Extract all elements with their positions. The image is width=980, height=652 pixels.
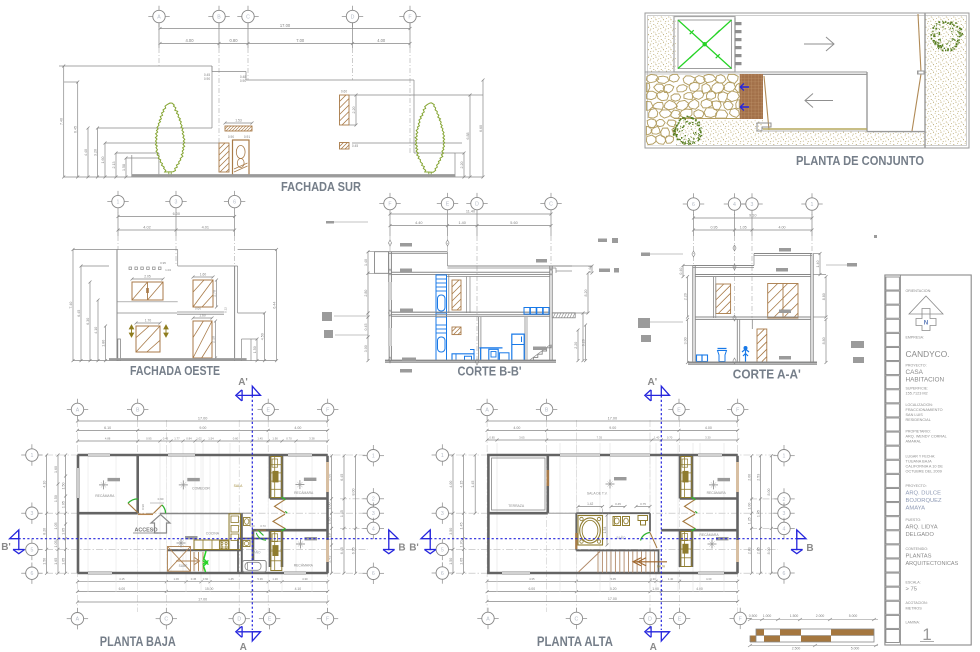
svg-text:PROPIETARIO:: PROPIETARIO: (906, 430, 931, 434)
svg-text:6: 6 (372, 571, 375, 577)
svg-text:11.40: 11.40 (466, 210, 475, 214)
svg-text:1.60: 1.60 (199, 314, 206, 318)
svg-text:2.10: 2.10 (211, 336, 215, 343)
svg-text:6.00: 6.00 (173, 212, 180, 216)
svg-text:0.20: 0.20 (581, 339, 585, 346)
svg-text:4: 4 (372, 526, 375, 532)
svg-text:2.500: 2.500 (792, 647, 801, 651)
svg-text:D: D (475, 202, 479, 208)
svg-text:1.50: 1.50 (42, 558, 46, 565)
svg-text:1.65: 1.65 (61, 558, 65, 565)
svg-text:RECÁMARA: RECÁMARA (95, 494, 115, 498)
svg-text:4.88: 4.88 (105, 437, 111, 441)
svg-text:1.54: 1.54 (603, 527, 607, 534)
svg-text:6.44: 6.44 (272, 302, 276, 309)
svg-text:155.7123 M2: 155.7123 M2 (906, 392, 928, 396)
svg-text:4.01: 4.01 (202, 226, 209, 230)
svg-text:1.04: 1.04 (165, 268, 171, 272)
svg-text:7.35: 7.35 (597, 436, 603, 440)
svg-text:PUESTO:: PUESTO: (906, 518, 922, 522)
svg-text:7.40: 7.40 (60, 118, 64, 125)
svg-text:6: 6 (692, 202, 695, 208)
svg-text:1.40: 1.40 (816, 261, 820, 268)
svg-text:5.60: 5.60 (510, 221, 517, 225)
svg-text:1: 1 (811, 202, 814, 208)
svg-text:A: A (76, 617, 80, 623)
svg-text:F: F (326, 407, 329, 413)
svg-text:3: 3 (30, 511, 33, 517)
svg-text:1.45: 1.45 (340, 510, 344, 517)
svg-text:0.91: 0.91 (244, 135, 250, 139)
svg-text:4.40: 4.40 (84, 149, 88, 156)
svg-text:0.90: 0.90 (240, 79, 246, 83)
svg-text:4.00: 4.00 (779, 226, 786, 230)
svg-text:1.50: 1.50 (449, 558, 453, 565)
svg-text:E: E (268, 617, 272, 623)
svg-text:1.58: 1.58 (122, 164, 126, 171)
svg-text:DELGADO: DELGADO (906, 532, 935, 538)
svg-text:PLANTAS: PLANTAS (906, 554, 932, 560)
svg-text:RECÁMARA: RECÁMARA (294, 563, 314, 567)
svg-text:0.12: 0.12 (224, 307, 228, 313)
svg-text:E: E (266, 407, 270, 413)
svg-text:FACHADA SUR: FACHADA SUR (281, 179, 362, 194)
svg-text:0.500: 0.500 (749, 614, 758, 618)
svg-text:3.30: 3.30 (705, 436, 711, 440)
svg-text:4.10: 4.10 (295, 587, 302, 591)
svg-text:C: C (246, 14, 250, 20)
svg-text:E: E (446, 202, 450, 208)
svg-text:1.00: 1.00 (747, 503, 751, 510)
svg-text:2.00: 2.00 (747, 474, 751, 481)
svg-text:2: 2 (372, 497, 375, 503)
svg-text:3: 3 (441, 511, 444, 517)
svg-text:PLANTA DE CONJUNTO: PLANTA DE CONJUNTO (796, 153, 924, 168)
svg-text:2.20: 2.20 (683, 293, 687, 300)
svg-text:3.20: 3.20 (93, 149, 97, 156)
svg-text:0.30: 0.30 (650, 577, 656, 581)
svg-text:1.40: 1.40 (459, 221, 466, 225)
svg-text:1.06: 1.06 (173, 577, 179, 581)
svg-text:LUGAR Y FECHA:: LUGAR Y FECHA: (906, 455, 936, 459)
svg-text:17.00: 17.00 (198, 598, 207, 602)
svg-text:0.40: 0.40 (679, 268, 683, 275)
svg-text:3.38: 3.38 (309, 437, 315, 441)
svg-text:6: 6 (783, 571, 786, 577)
svg-text:6: 6 (233, 200, 236, 206)
svg-text:1: 1 (783, 454, 786, 460)
svg-text:5.000: 5.000 (851, 647, 860, 651)
svg-text:B: B (136, 407, 140, 413)
svg-text:B: B (217, 14, 221, 20)
svg-text:A: A (486, 616, 490, 622)
svg-text:1.00: 1.00 (652, 587, 659, 591)
svg-text:0.45: 0.45 (364, 324, 368, 331)
svg-text:TIJUANA BAJA: TIJUANA BAJA (906, 460, 933, 464)
svg-text:B: B (545, 407, 549, 413)
svg-text:F: F (739, 616, 742, 622)
svg-text:1.40: 1.40 (654, 436, 660, 440)
svg-text:RECÁMARA: RECÁMARA (699, 533, 719, 537)
svg-text:1.42: 1.42 (587, 502, 593, 506)
svg-text:A': A' (238, 377, 248, 388)
svg-text:COCINA: COCINA (206, 532, 220, 536)
svg-text:8.80: 8.80 (822, 337, 826, 344)
svg-text:1.45: 1.45 (257, 437, 263, 441)
svg-text:B: B (398, 543, 405, 554)
svg-text:5.36: 5.36 (257, 577, 263, 581)
svg-text:6: 6 (441, 571, 444, 577)
svg-text:CALIFORNIA A 10 DE: CALIFORNIA A 10 DE (906, 465, 944, 469)
svg-text:6.88: 6.88 (466, 133, 470, 140)
svg-text:2.20: 2.20 (460, 162, 464, 169)
svg-text:4.50: 4.50 (260, 333, 264, 340)
svg-text:C: C (575, 616, 579, 622)
svg-text:1: 1 (30, 453, 33, 459)
svg-text:D: D (237, 617, 241, 623)
svg-text:0.85: 0.85 (489, 436, 495, 440)
svg-text:RECÁMARA: RECÁMARA (707, 491, 727, 495)
svg-text:PLANTA ALTA: PLANTA ALTA (537, 634, 613, 649)
svg-text:A: A (485, 407, 489, 413)
svg-text:F: F (388, 202, 391, 208)
svg-text:4.00: 4.00 (513, 426, 520, 430)
svg-text:2: 2 (783, 497, 786, 503)
svg-text:1.500: 1.500 (790, 614, 799, 618)
svg-text:0.95: 0.95 (711, 226, 718, 230)
svg-text:5.05: 5.05 (610, 577, 616, 581)
svg-text:PLANTA BAJA: PLANTA BAJA (100, 634, 176, 649)
svg-text:0.75: 0.75 (640, 502, 646, 506)
svg-text:ARQ. DULCE: ARQ. DULCE (906, 491, 942, 497)
svg-text:6.10: 6.10 (104, 426, 111, 430)
svg-text:N: N (924, 320, 929, 327)
svg-text:4.02: 4.02 (143, 226, 150, 230)
svg-text:1.50: 1.50 (54, 495, 58, 502)
svg-text:5.000: 5.000 (849, 614, 858, 618)
svg-text:6.45: 6.45 (340, 547, 344, 554)
svg-text:8.20: 8.20 (584, 290, 588, 297)
svg-text:C: C (549, 202, 553, 208)
svg-text:CORTE A-A': CORTE A-A' (733, 367, 801, 382)
svg-text:1.77: 1.77 (174, 437, 180, 441)
svg-text:1.53: 1.53 (235, 119, 242, 123)
svg-text:6.45: 6.45 (340, 474, 344, 481)
svg-text:6.45: 6.45 (77, 310, 81, 317)
svg-text:8.00: 8.00 (767, 547, 771, 554)
svg-text:SUBE: SUBE (179, 564, 188, 568)
svg-text:3: 3 (751, 202, 754, 208)
svg-text:F: F (326, 617, 329, 623)
svg-text:6.30: 6.30 (86, 318, 90, 325)
svg-text:2.000: 2.000 (816, 614, 825, 618)
svg-text:0.80: 0.80 (230, 38, 239, 43)
svg-text:A: A (76, 407, 80, 413)
svg-text:1.90: 1.90 (272, 437, 278, 441)
svg-text:1.80: 1.80 (101, 340, 105, 347)
svg-text:7.00: 7.00 (296, 38, 305, 43)
svg-text:0.45: 0.45 (615, 502, 621, 506)
svg-text:1.45: 1.45 (471, 481, 475, 488)
svg-text:0.45: 0.45 (163, 437, 169, 441)
svg-text:2.85: 2.85 (756, 547, 760, 554)
svg-text:1.20: 1.20 (459, 541, 463, 548)
svg-text:RESIDENCIAL: RESIDENCIAL (906, 418, 931, 422)
svg-text:4: 4 (783, 526, 786, 532)
svg-text:6.45: 6.45 (74, 126, 78, 133)
svg-text:D: D (648, 616, 652, 622)
svg-text:0.90: 0.90 (141, 504, 145, 510)
svg-text:2.05: 2.05 (144, 275, 151, 279)
svg-text:AMARAL: AMARAL (906, 440, 922, 444)
svg-text:PROYECTO:: PROYECTO: (906, 484, 927, 488)
svg-text:0.73: 0.73 (260, 524, 266, 528)
svg-text:D: D (351, 14, 355, 20)
svg-text:1.60: 1.60 (200, 273, 207, 277)
svg-text:0.70: 0.70 (286, 437, 292, 441)
svg-text:B': B' (409, 543, 419, 554)
svg-text:1: 1 (372, 454, 375, 460)
svg-text:F: F (736, 407, 739, 413)
svg-text:1.05: 1.05 (61, 528, 65, 535)
svg-text:2.83: 2.83 (747, 547, 751, 554)
svg-text:CANDYCO.: CANDYCO. (906, 350, 950, 359)
svg-text:B': B' (1, 542, 11, 553)
svg-text:1: 1 (441, 453, 444, 459)
svg-text:4: 4 (733, 202, 736, 208)
svg-text:BOJORQUEZ: BOJORQUEZ (906, 498, 943, 504)
svg-text:17.00: 17.00 (608, 597, 617, 601)
svg-text:1.05: 1.05 (54, 523, 58, 530)
svg-text:2.20: 2.20 (352, 107, 356, 114)
svg-text:4.00: 4.00 (186, 38, 195, 43)
svg-text:ARQUITECTONICAS: ARQUITECTONICAS (906, 561, 959, 567)
svg-text:EMPRESA:: EMPRESA: (906, 336, 925, 340)
svg-text:1.02: 1.02 (196, 437, 202, 441)
svg-text:17.00: 17.00 (608, 417, 618, 421)
svg-text:1.05: 1.05 (61, 501, 65, 508)
svg-text:4.00: 4.00 (377, 38, 386, 43)
svg-text:0.60: 0.60 (341, 90, 347, 94)
svg-text:4.40: 4.40 (415, 221, 422, 225)
svg-text:1.60: 1.60 (101, 157, 105, 164)
svg-text:15.00: 15.00 (205, 587, 214, 591)
svg-text:6.95: 6.95 (351, 547, 355, 554)
svg-text:1.40: 1.40 (364, 259, 368, 266)
svg-text:3.00: 3.00 (364, 345, 368, 352)
svg-text:4.30: 4.30 (302, 577, 308, 581)
svg-text:1.70: 1.70 (212, 290, 216, 297)
svg-text:4.00: 4.00 (696, 587, 703, 591)
svg-text:17.00: 17.00 (280, 23, 291, 28)
svg-text:BAÑO: BAÑO (251, 549, 261, 554)
svg-text:8.20: 8.20 (42, 528, 46, 535)
svg-text:5: 5 (30, 547, 33, 553)
svg-text:8.00: 8.00 (767, 489, 771, 496)
svg-text:9.00: 9.00 (199, 426, 206, 430)
svg-text:4.30: 4.30 (706, 577, 712, 581)
svg-text:CORTE B-B': CORTE B-B' (458, 364, 522, 379)
svg-text:A: A (650, 642, 657, 652)
svg-text:F: F (408, 14, 411, 20)
svg-text:0.95: 0.95 (146, 437, 152, 441)
svg-text:1.20: 1.20 (272, 577, 278, 581)
svg-text:1.50: 1.50 (61, 483, 65, 490)
svg-text:2.80: 2.80 (364, 290, 368, 297)
svg-text:1.54: 1.54 (208, 437, 214, 441)
svg-text:CONTENIDO:: CONTENIDO: (906, 547, 929, 551)
svg-text:6.00: 6.00 (528, 587, 535, 591)
svg-text:FACHADA OESTE: FACHADA OESTE (130, 363, 220, 378)
svg-text:SUPERFICIE:: SUPERFICIE: (906, 387, 929, 391)
svg-text:SALA: SALA (234, 484, 243, 488)
svg-text:6: 6 (30, 571, 33, 577)
svg-text:ARQ. LIDYA: ARQ. LIDYA (906, 525, 938, 531)
svg-text:6.60: 6.60 (479, 125, 483, 132)
svg-text:FRACCIONAMIENTO: FRACCIONAMIENTO (906, 408, 943, 412)
svg-text:1.40: 1.40 (668, 577, 674, 581)
svg-text:4.10: 4.10 (94, 327, 98, 334)
svg-text:0.70: 0.70 (667, 436, 673, 440)
svg-text:LAMINA:: LAMINA: (906, 621, 920, 625)
svg-text:4.35: 4.35 (529, 577, 535, 581)
svg-text:1.45: 1.45 (756, 510, 760, 517)
svg-text:0.90: 0.90 (158, 497, 164, 501)
svg-text:9.10: 9.10 (749, 214, 756, 218)
svg-text:2.13: 2.13 (112, 162, 116, 169)
svg-text:1.45: 1.45 (459, 523, 463, 530)
svg-text:3.65: 3.65 (519, 436, 525, 440)
svg-text:1.60: 1.60 (54, 466, 58, 473)
svg-text:SALA DE T.V.: SALA DE T.V. (587, 492, 608, 496)
svg-text:0.60: 0.60 (233, 437, 239, 441)
svg-text:4.00: 4.00 (294, 426, 301, 430)
svg-text:1.65: 1.65 (54, 558, 58, 565)
svg-text:A': A' (647, 377, 657, 388)
svg-text:A: A (240, 642, 247, 652)
svg-text:0.84: 0.84 (186, 437, 192, 441)
svg-text:ORIENTACION:: ORIENTACION: (906, 289, 932, 293)
svg-text:COMEDOR: COMEDOR (192, 487, 210, 491)
svg-text:A: A (157, 14, 161, 20)
svg-text:METROS: METROS (906, 607, 923, 611)
svg-text:0.60: 0.60 (203, 577, 209, 581)
svg-text:8.00: 8.00 (351, 489, 355, 496)
svg-text:1.05: 1.05 (740, 226, 747, 230)
svg-text:8.80: 8.80 (822, 293, 826, 300)
svg-text:AMAYA: AMAYA (906, 506, 926, 512)
svg-text:SAN LUIS: SAN LUIS (906, 413, 924, 417)
svg-text:4.00: 4.00 (449, 481, 453, 488)
svg-text:> 75: > 75 (906, 587, 917, 593)
svg-text:1.65: 1.65 (459, 558, 463, 565)
svg-text:OCTUBRE DEL 2009: OCTUBRE DEL 2009 (906, 470, 942, 474)
svg-text:0.90: 0.90 (228, 135, 234, 139)
svg-text:5.20: 5.20 (610, 587, 617, 591)
svg-text:RECÁMARA: RECÁMARA (294, 491, 314, 495)
svg-text:0.45: 0.45 (352, 144, 358, 148)
svg-text:4.15: 4.15 (459, 481, 463, 488)
svg-text:4.15: 4.15 (119, 577, 125, 581)
svg-text:3: 3 (372, 511, 375, 517)
svg-text:LOCALIZACION:: LOCALIZACION: (906, 403, 933, 407)
svg-text:3: 3 (175, 200, 178, 206)
svg-text:3: 3 (783, 511, 786, 517)
svg-text:0.45: 0.45 (191, 577, 197, 581)
svg-text:0.90: 0.90 (204, 77, 210, 81)
svg-text:2.53: 2.53 (756, 474, 760, 481)
svg-text:TERRAZA: TERRAZA (508, 504, 525, 508)
svg-text:1.70: 1.70 (145, 319, 152, 323)
svg-text:ACOTACION:: ACOTACION: (906, 601, 928, 605)
svg-text:7.40: 7.40 (69, 302, 73, 309)
svg-text:2.20: 2.20 (574, 342, 578, 349)
svg-text:0.44: 0.44 (588, 266, 592, 273)
svg-text:PROYECTO:: PROYECTO: (906, 364, 927, 368)
svg-text:CASA: CASA (906, 369, 924, 376)
svg-text:0.95: 0.95 (160, 261, 166, 265)
svg-text:9.00: 9.00 (609, 426, 616, 430)
svg-text:4.10: 4.10 (42, 481, 46, 488)
svg-text:E: E (677, 407, 681, 413)
svg-text:C: C (164, 617, 168, 623)
svg-text:1.50: 1.50 (253, 346, 257, 353)
svg-text:4.00: 4.00 (705, 426, 712, 430)
svg-text:1.25: 1.25 (747, 517, 751, 524)
svg-text:3.50: 3.50 (449, 528, 453, 535)
svg-text:E: E (678, 616, 682, 622)
svg-text:1.05: 1.05 (54, 541, 58, 548)
svg-text:1: 1 (117, 200, 120, 206)
svg-text:B: B (806, 543, 813, 554)
svg-text:5: 5 (441, 547, 444, 553)
svg-text:6.00: 6.00 (119, 587, 126, 591)
svg-text:17.00: 17.00 (198, 417, 208, 421)
svg-text:ESCALA:: ESCALA: (906, 581, 921, 585)
svg-text:HABITACION: HABITACION (906, 377, 945, 384)
svg-text:3.00: 3.00 (683, 337, 687, 344)
svg-text:1.000: 1.000 (763, 614, 772, 618)
svg-text:ARQ. WENDY CORRAL: ARQ. WENDY CORRAL (906, 435, 947, 439)
svg-text:1.45: 1.45 (228, 577, 234, 581)
